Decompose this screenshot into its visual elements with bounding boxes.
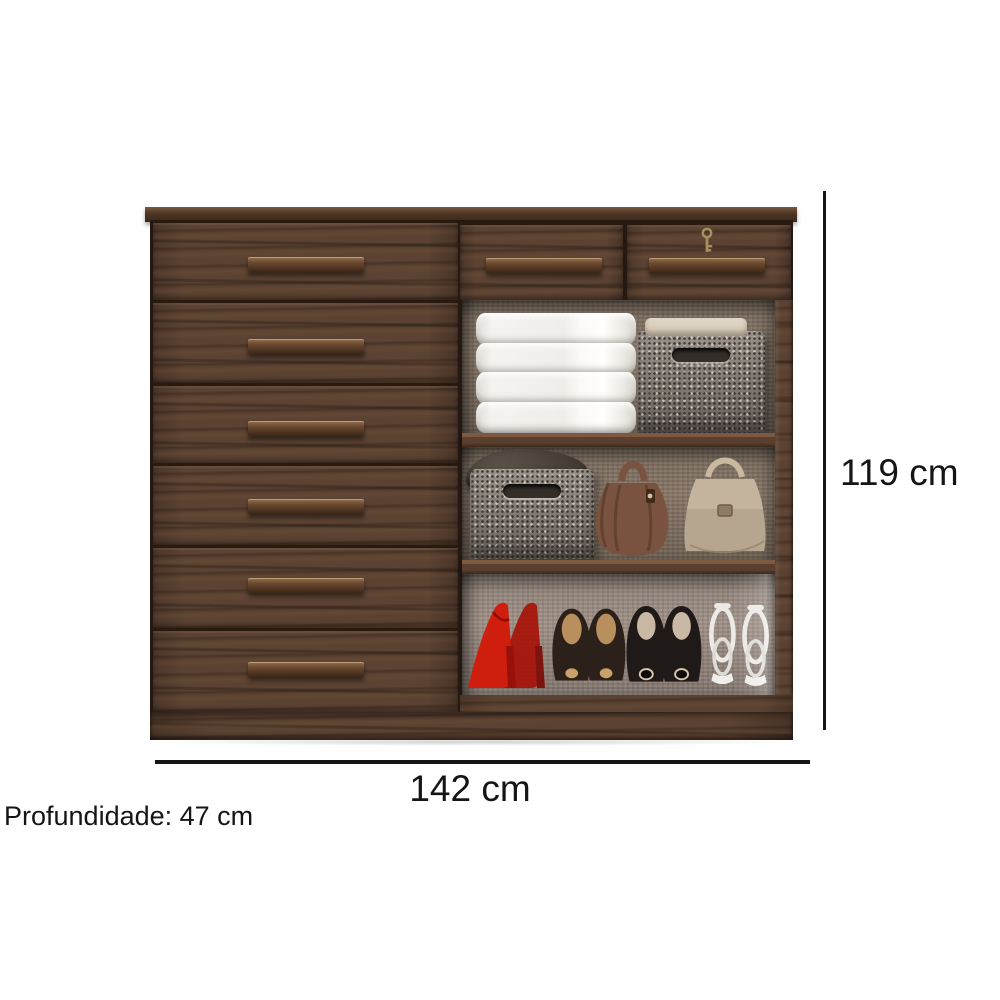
depth-dimension-label: Profundidade: 47 cm [4,801,253,832]
shelf-board [462,433,775,447]
floor-shadow [150,738,795,746]
drawer-5-handle [248,578,364,593]
fabric-storage-basket [470,469,594,559]
drawer-4 [153,463,458,545]
towel [476,372,636,404]
width-dimension-line [155,760,810,764]
shelf-compartment-shoes [462,574,775,695]
brown-peep-toe-heels [550,584,626,692]
drawer-1-handle [248,257,364,272]
basket-handle-slot [503,484,561,498]
cabinet-right-panel [775,300,793,695]
black-pumps [624,584,702,692]
shelf-compartment-bags [462,447,775,560]
cabinet-body [150,220,793,740]
cabinet-base [150,712,793,740]
shelf-board [462,560,775,574]
drawer-1 [153,220,458,300]
brown-leather-bag [590,449,674,559]
towel [476,343,636,375]
key-icon [699,227,715,259]
towel [476,402,636,434]
open-shelves [462,300,775,695]
glass-reflection [729,574,775,695]
shelf-bottom-rail [460,695,793,712]
drawer-5 [153,545,458,628]
folded-cream-towel [645,318,747,336]
product-image: 119 cm 142 cm Profundidade: 47 cm [0,0,1000,1000]
beige-handbag [676,449,774,559]
drawer-3-handle [248,421,364,436]
shelf-compartment-towels [462,300,775,433]
basket-handle-slot [672,348,730,362]
towel [476,313,636,345]
top-drawer-left-handle [486,258,602,273]
height-dimension-label: 119 cm [840,452,959,494]
width-dimension-label: 142 cm [330,768,610,810]
drawer-4-handle [248,499,364,514]
top-drawer-right-handle [649,258,765,273]
fabric-storage-basket [637,331,765,433]
height-dimension-line [823,191,826,730]
top-drawer-left [460,222,623,300]
drawer-6 [153,628,458,712]
drawer-2 [153,300,458,383]
folded-white-towels [476,315,636,433]
top-drawer-row [460,220,793,300]
dresser-cabinet [145,207,797,740]
red-pumps [466,584,546,692]
drawer-3 [153,383,458,463]
drawer-2-handle [248,339,364,354]
drawer-6-handle [248,662,364,677]
top-drawer-right-locked [627,222,791,300]
drawer-column [153,220,458,712]
